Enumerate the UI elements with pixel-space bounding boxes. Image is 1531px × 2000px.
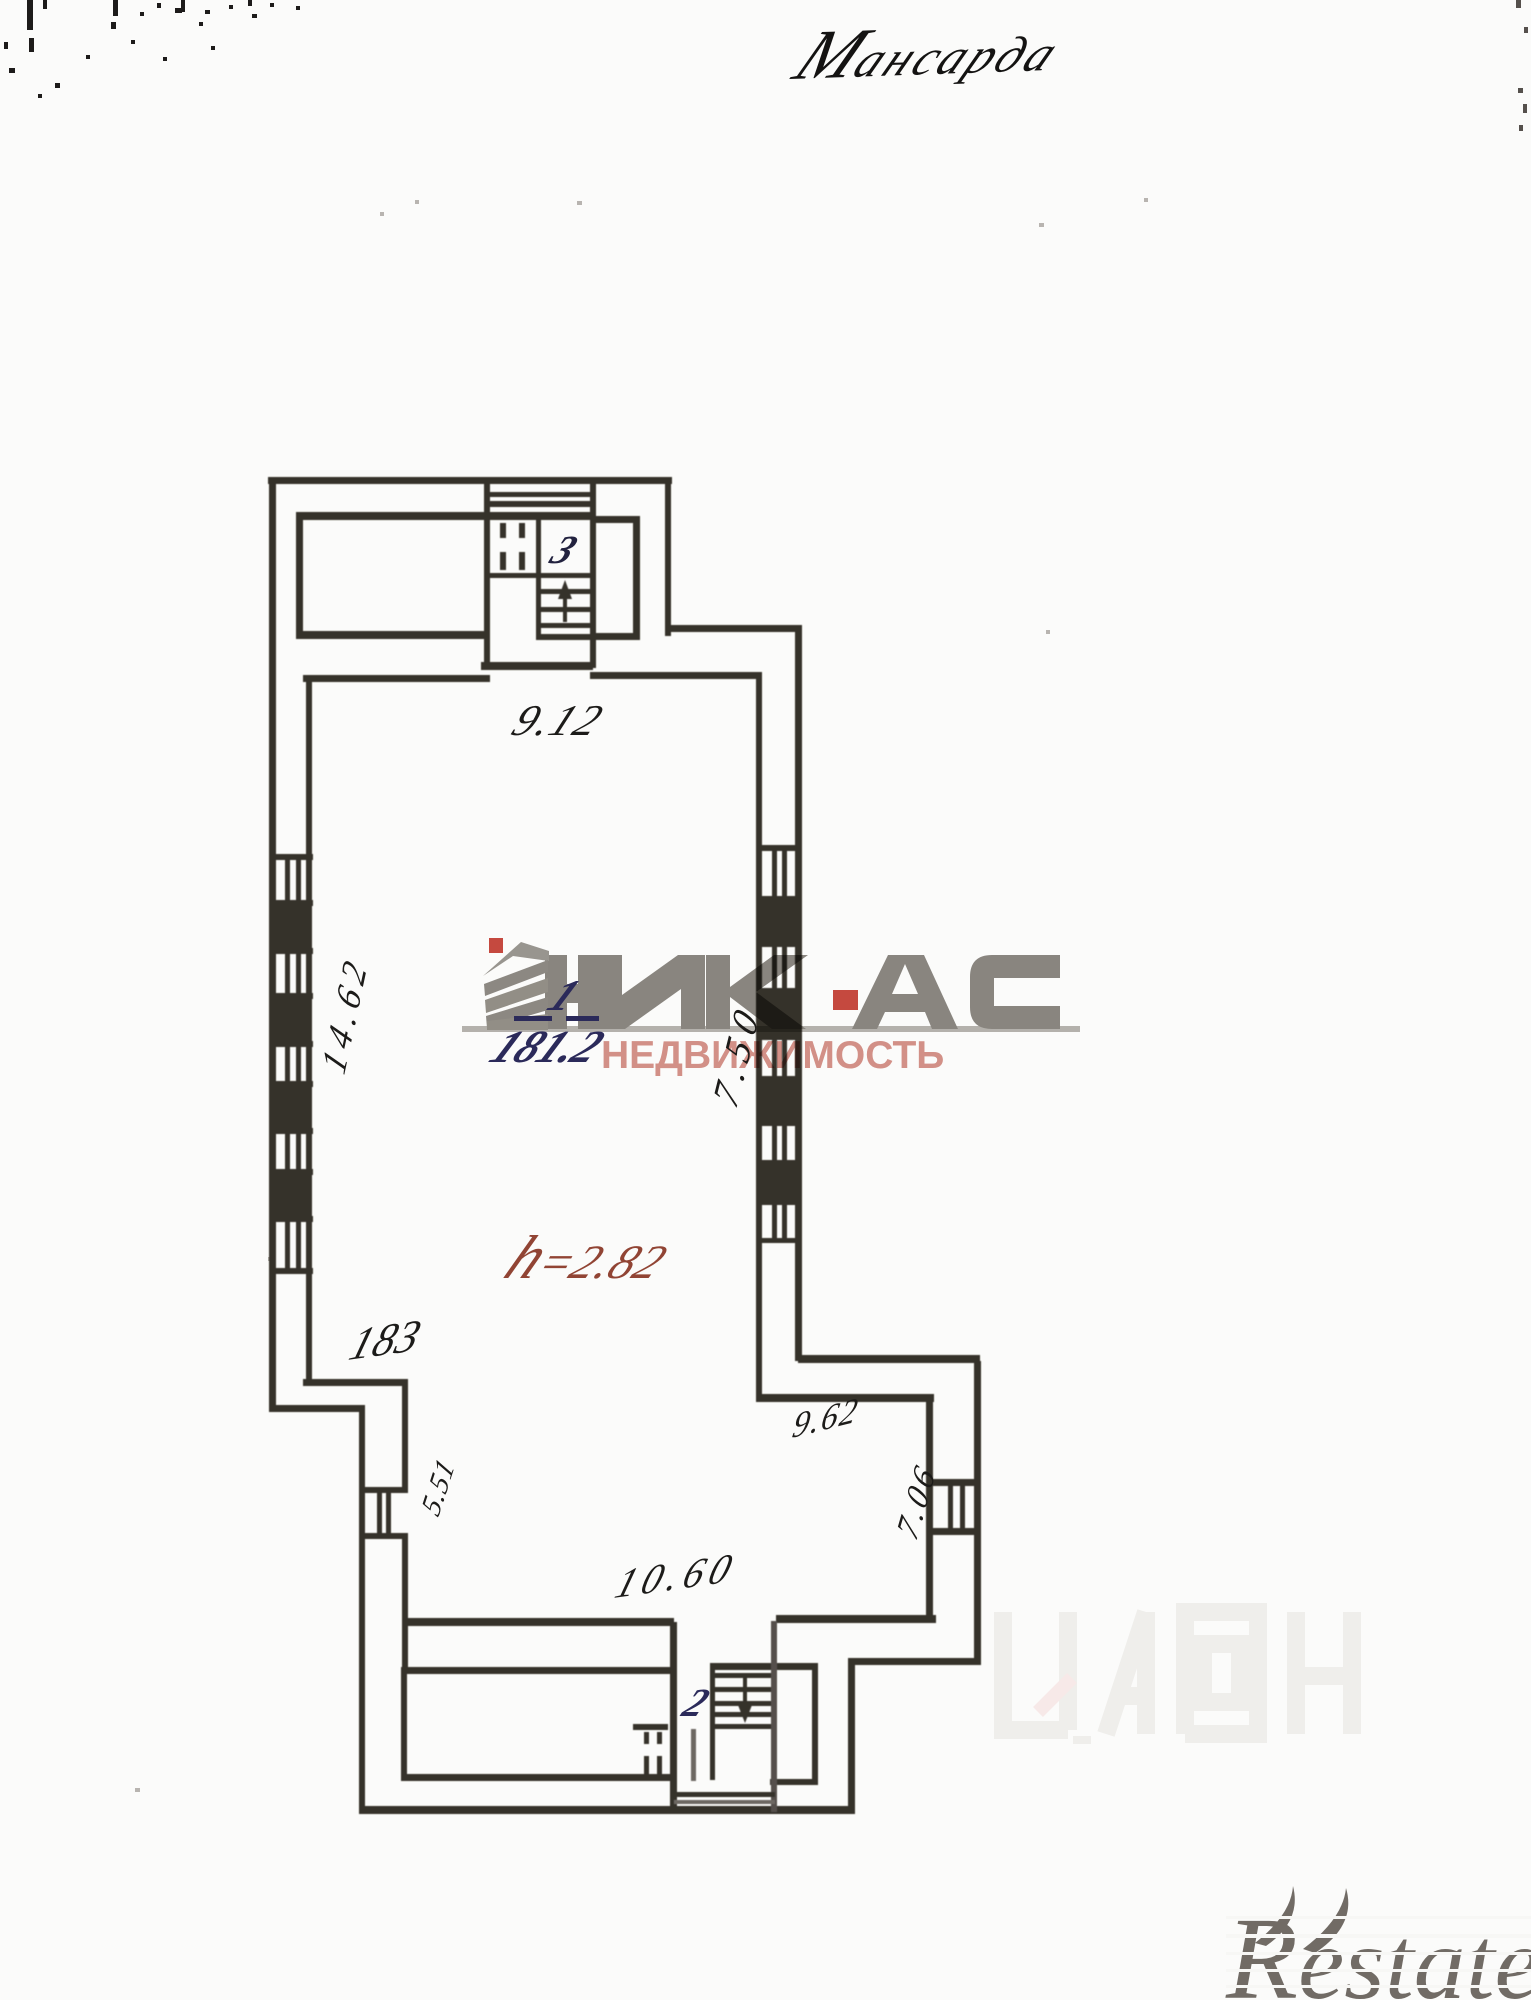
- svg-text:Restate: Restate: [1225, 1893, 1531, 2000]
- svg-text:НЕДВИЖИМОСТЬ: НЕДВИЖИМОСТЬ: [601, 1034, 944, 1077]
